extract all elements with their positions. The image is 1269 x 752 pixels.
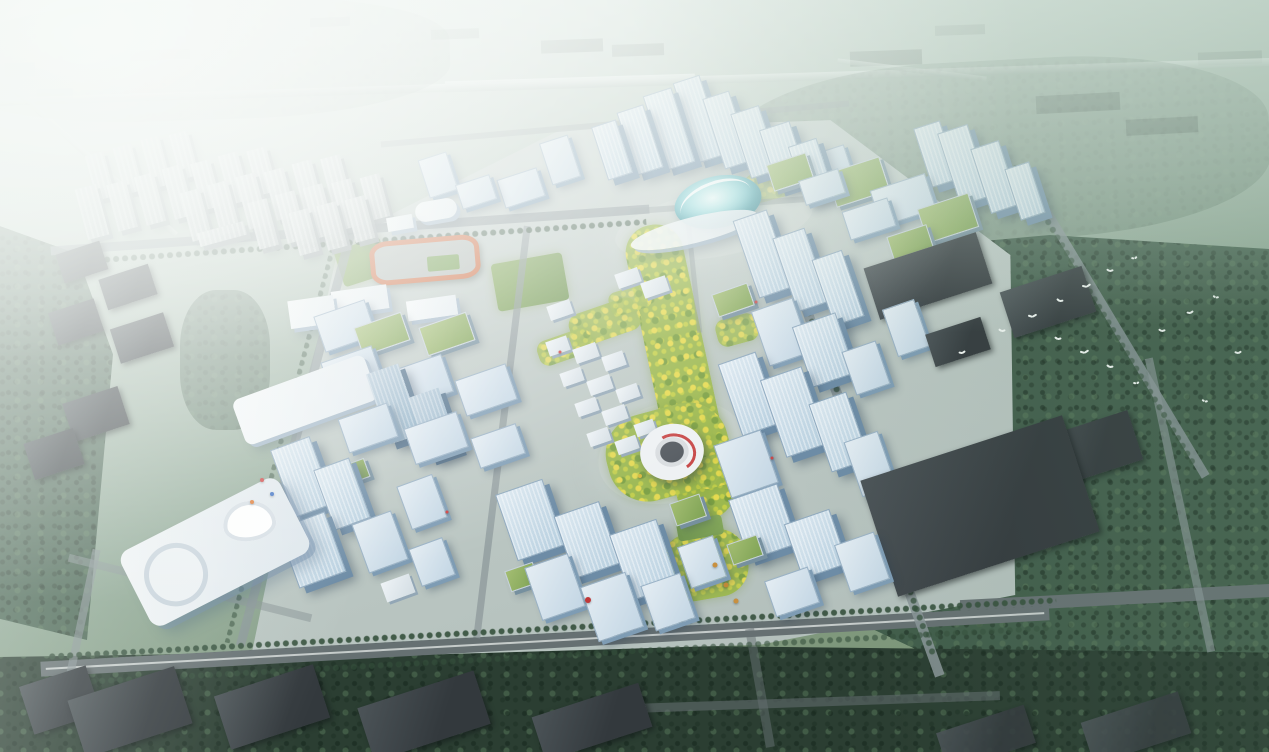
flying-bird: [1106, 266, 1114, 274]
flying-bird: [1130, 253, 1137, 260]
flying-bird: [1133, 379, 1140, 386]
flying-bird: [1186, 308, 1194, 316]
flying-bird: [1234, 348, 1242, 356]
flying-bird: [958, 348, 966, 356]
aerial-city-render: [0, 0, 1269, 752]
birds: [0, 0, 1269, 752]
flying-bird: [1056, 296, 1064, 304]
flying-bird: [1158, 326, 1166, 334]
flying-bird: [1201, 396, 1208, 403]
flying-bird: [1213, 293, 1220, 300]
flying-bird: [1079, 347, 1088, 356]
flying-bird: [1106, 362, 1114, 370]
flying-bird: [1081, 281, 1090, 290]
flying-bird: [1028, 312, 1037, 321]
flying-bird: [1054, 334, 1062, 342]
flying-bird: [998, 326, 1006, 334]
